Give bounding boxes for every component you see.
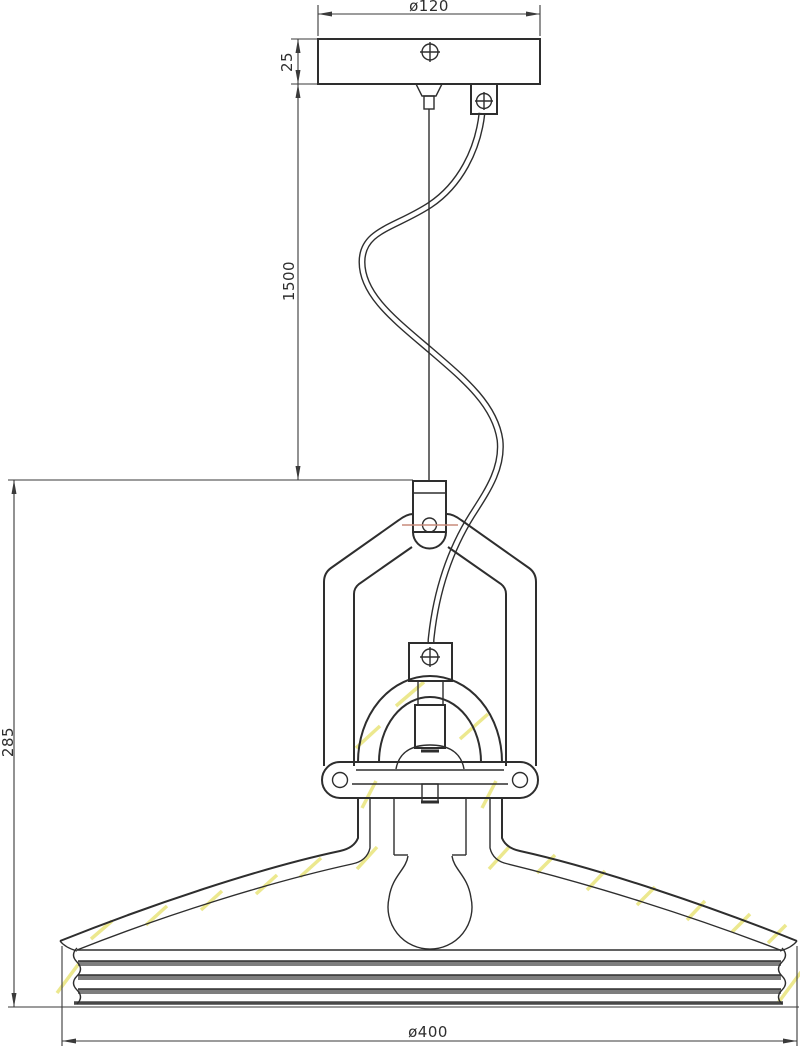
light-bulb bbox=[388, 856, 472, 949]
dim-label-suspension-length: 1500 bbox=[280, 261, 298, 301]
ceiling-canopy bbox=[318, 39, 540, 114]
lamp-socket bbox=[415, 705, 445, 748]
shade-outer-right bbox=[502, 798, 797, 941]
dim-label-canopy-diameter: ø120 bbox=[409, 0, 449, 15]
canopy-screw-icon bbox=[420, 42, 440, 62]
cable-gland bbox=[416, 84, 442, 96]
socket-nipple bbox=[422, 784, 438, 802]
shade-outer-left bbox=[60, 798, 358, 941]
cord-grip-screw-icon bbox=[420, 647, 440, 667]
strain-relief-screw-icon bbox=[475, 92, 493, 110]
bolt-hole-right bbox=[513, 773, 528, 788]
dim-label-lamp-height: 285 bbox=[0, 727, 17, 757]
ribbed-rim bbox=[74, 948, 786, 1004]
bolt-hole-left bbox=[333, 773, 348, 788]
cord-grip bbox=[396, 643, 464, 802]
fitter-bracket bbox=[322, 762, 538, 798]
dimension-layer: ø120 25 1500 285 ø400 bbox=[0, 0, 799, 1046]
hanger-bracket bbox=[413, 481, 446, 549]
power-cord bbox=[362, 113, 500, 644]
glass-hatch-marks bbox=[57, 682, 800, 1003]
shade-inner-left bbox=[77, 798, 370, 950]
glass-shade bbox=[60, 798, 797, 951]
dim-label-shade-diameter: ø400 bbox=[408, 1023, 448, 1041]
pendant-lamp-drawing: ø120 25 1500 285 ø400 bbox=[0, 0, 800, 1049]
shade-right-tip bbox=[780, 941, 797, 951]
technical-drawing-canvas: ø120 25 1500 285 ø400 bbox=[0, 0, 800, 1049]
dim-label-canopy-height: 25 bbox=[278, 52, 296, 72]
cable-gland-stem bbox=[424, 96, 434, 109]
